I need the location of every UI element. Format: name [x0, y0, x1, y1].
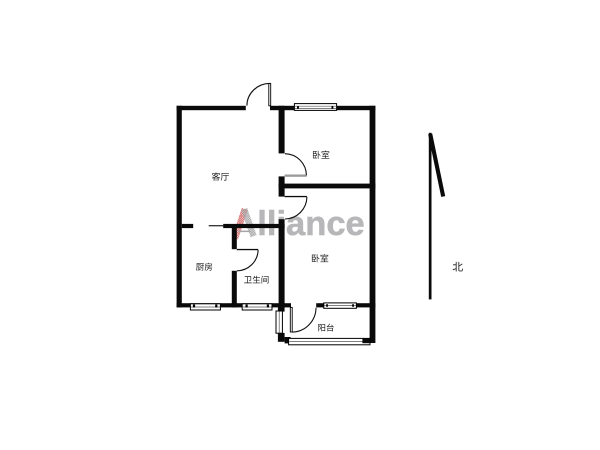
svg-text:lliance: lliance: [257, 205, 364, 243]
